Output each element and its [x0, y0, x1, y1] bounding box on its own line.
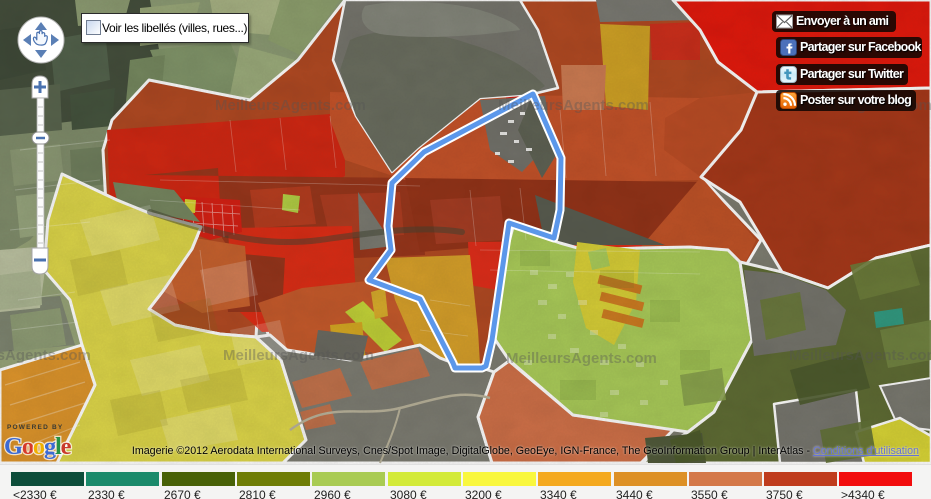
svg-text:MeilleursAgents.com: MeilleursAgents.com	[0, 347, 91, 364]
svg-text:MeilleursAgents.com: MeilleursAgents.com	[223, 347, 374, 364]
svg-text:MeilleursAgents.com: MeilleursAgents.com	[498, 97, 649, 114]
svg-text:MeilleursAgents.com: MeilleursAgents.com	[506, 350, 657, 367]
svg-text:Google: Google	[4, 433, 72, 460]
svg-text:POWERED BY: POWERED BY	[7, 424, 63, 431]
svg-text:MeilleursAgents.com: MeilleursAgents.com	[215, 97, 366, 114]
svg-text:MeilleursAgents.com: MeilleursAgents.com	[789, 347, 931, 364]
